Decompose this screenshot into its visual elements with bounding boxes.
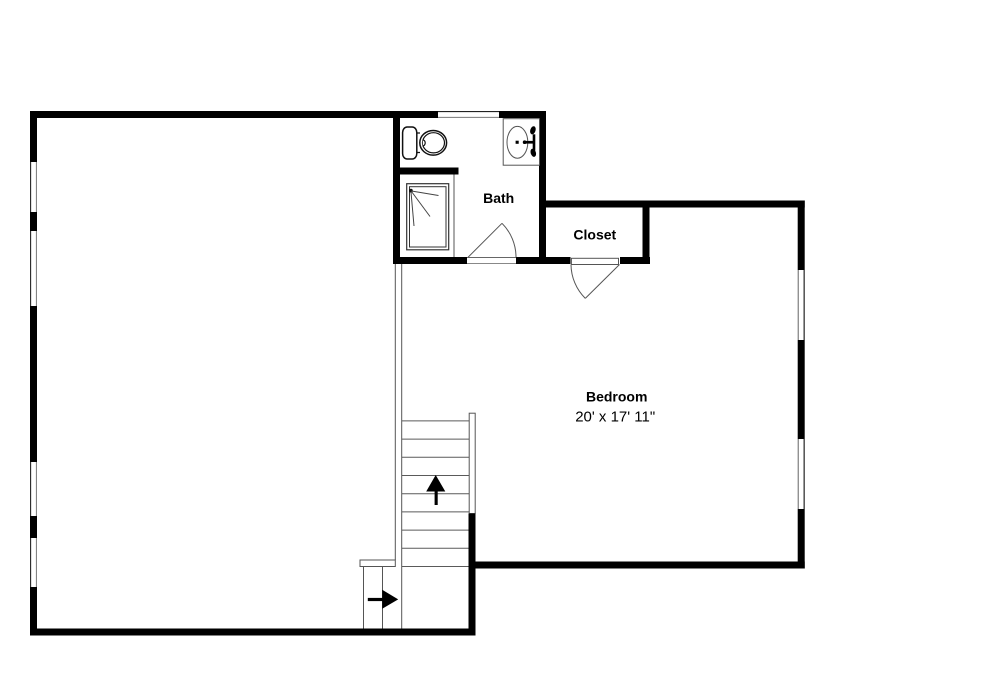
svg-text:Bedroom: Bedroom	[586, 389, 647, 405]
svg-text:Closet: Closet	[573, 227, 616, 243]
svg-text:Bath: Bath	[483, 190, 514, 206]
svg-text:20' x 17' 11": 20' x 17' 11"	[575, 408, 655, 425]
